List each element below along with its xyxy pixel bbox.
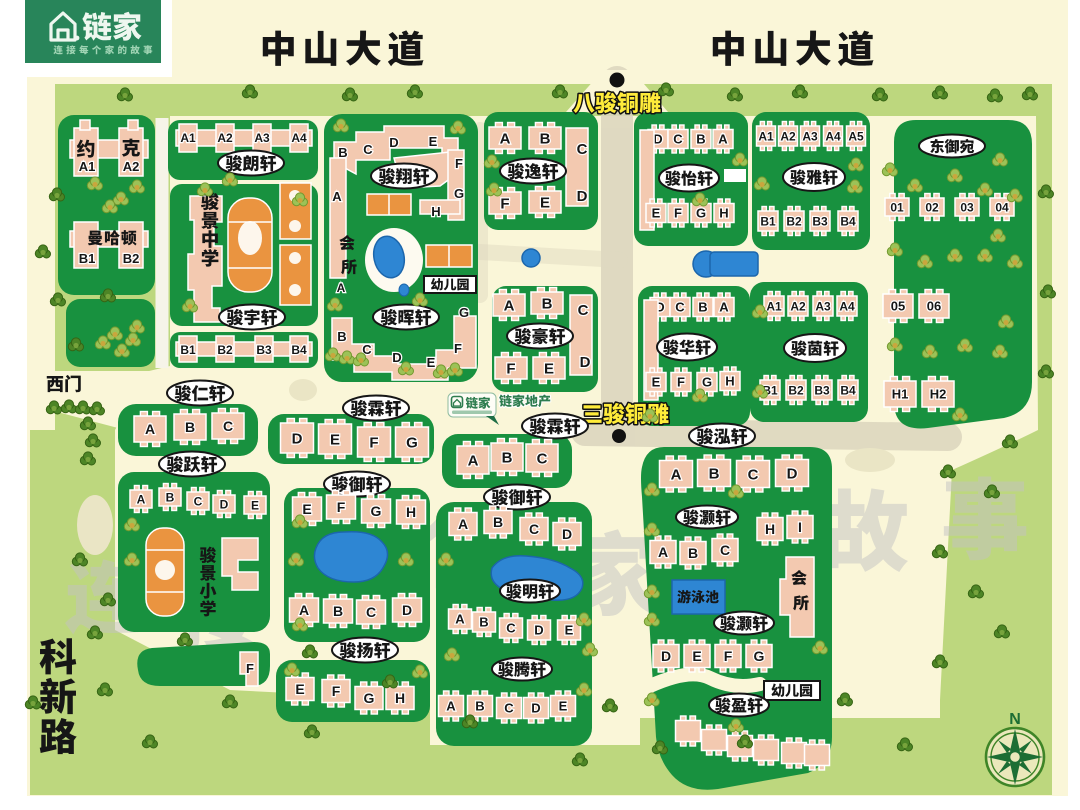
svg-text:01: 01 <box>890 200 904 214</box>
svg-text:A4: A4 <box>839 299 855 313</box>
svg-text:B: B <box>333 603 343 619</box>
svg-text:B: B <box>185 419 195 435</box>
svg-text:F: F <box>337 499 346 515</box>
svg-text:B1: B1 <box>760 214 776 228</box>
svg-text:C: C <box>578 302 589 319</box>
svg-text:A: A <box>719 300 729 315</box>
svg-text:05: 05 <box>891 299 905 314</box>
svg-text:A4: A4 <box>291 131 307 145</box>
svg-text:A5: A5 <box>848 129 864 143</box>
svg-text:C: C <box>529 521 539 537</box>
svg-text:A2: A2 <box>780 129 796 143</box>
svg-text:B: B <box>479 615 488 630</box>
svg-text:E: E <box>540 194 550 211</box>
svg-text:F: F <box>369 434 378 451</box>
svg-text:H: H <box>406 504 416 520</box>
svg-text:C: C <box>504 701 514 716</box>
svg-text:A3: A3 <box>802 129 818 143</box>
svg-text:06: 06 <box>927 299 941 314</box>
svg-text:C: C <box>363 142 373 157</box>
svg-text:F: F <box>506 360 515 377</box>
svg-text:A2: A2 <box>123 159 140 174</box>
svg-text:E: E <box>565 623 574 638</box>
svg-text:D: D <box>292 430 303 447</box>
svg-text:A: A <box>658 544 668 560</box>
svg-text:G: G <box>406 434 418 451</box>
svg-text:A3: A3 <box>254 131 270 145</box>
svg-text:D: D <box>661 648 671 664</box>
svg-text:G: G <box>702 375 712 390</box>
svg-text:G: G <box>371 503 382 519</box>
svg-text:E: E <box>544 360 554 377</box>
svg-text:E: E <box>330 431 340 448</box>
svg-text:B: B <box>698 300 707 315</box>
svg-text:A1: A1 <box>766 299 782 313</box>
svg-text:H: H <box>765 521 775 537</box>
svg-text:C: C <box>720 542 730 558</box>
svg-text:G: G <box>459 305 469 320</box>
svg-text:04: 04 <box>995 200 1009 214</box>
svg-text:A2: A2 <box>790 299 806 313</box>
svg-text:B2: B2 <box>217 343 233 357</box>
svg-text:B1: B1 <box>79 251 96 266</box>
svg-text:B4: B4 <box>840 214 856 228</box>
svg-text:02: 02 <box>925 200 939 214</box>
svg-text:C: C <box>537 450 548 467</box>
svg-text:B: B <box>502 449 513 466</box>
svg-text:A1: A1 <box>79 159 96 174</box>
svg-text:A: A <box>455 612 465 627</box>
svg-text:A1: A1 <box>758 129 774 143</box>
svg-text:B: B <box>696 132 705 147</box>
svg-text:B: B <box>688 545 698 561</box>
svg-text:B: B <box>337 329 346 344</box>
svg-text:E: E <box>295 681 304 697</box>
svg-text:E: E <box>652 206 661 221</box>
svg-text:F: F <box>677 375 685 390</box>
svg-text:E: E <box>429 134 438 149</box>
svg-text:D: D <box>531 701 540 716</box>
svg-text:A: A <box>446 699 456 714</box>
svg-text:H: H <box>395 690 405 706</box>
svg-text:A3: A3 <box>815 299 831 313</box>
svg-text:N: N <box>1009 711 1021 728</box>
svg-text:B3: B3 <box>814 383 830 397</box>
svg-text:B4: B4 <box>840 383 856 397</box>
svg-text:D: D <box>220 497 229 511</box>
svg-text:E: E <box>559 699 568 714</box>
svg-text:A2: A2 <box>217 131 233 145</box>
svg-text:E: E <box>427 355 436 370</box>
svg-text:B3: B3 <box>256 343 272 357</box>
svg-text:F: F <box>500 195 509 212</box>
svg-text:A: A <box>500 130 511 147</box>
svg-text:D: D <box>580 354 591 371</box>
svg-text:G: G <box>754 648 765 664</box>
svg-text:F: F <box>455 156 463 171</box>
svg-text:F: F <box>674 206 682 221</box>
svg-text:B2: B2 <box>788 383 804 397</box>
svg-text:H1: H1 <box>892 387 909 402</box>
svg-text:G: G <box>454 186 464 201</box>
svg-text:A4: A4 <box>825 129 841 143</box>
svg-text:B4: B4 <box>291 343 307 357</box>
svg-text:A: A <box>671 466 682 483</box>
svg-text:C: C <box>748 466 759 483</box>
svg-text:B: B <box>540 130 551 147</box>
svg-text:A: A <box>337 281 346 295</box>
svg-text:A: A <box>718 132 728 147</box>
svg-text:F: F <box>454 341 462 356</box>
svg-text:A: A <box>468 452 479 469</box>
svg-text:B: B <box>493 514 503 530</box>
svg-text:H: H <box>431 204 440 219</box>
svg-text:F: F <box>724 648 733 664</box>
svg-text:C: C <box>506 621 516 636</box>
svg-text:F: F <box>246 661 254 676</box>
svg-text:E: E <box>251 498 259 512</box>
svg-text:B2: B2 <box>786 214 802 228</box>
svg-text:E: E <box>302 501 311 517</box>
svg-text:A: A <box>504 297 515 314</box>
svg-text:D: D <box>562 526 572 542</box>
svg-text:A: A <box>332 189 342 204</box>
svg-text:H2: H2 <box>930 387 947 402</box>
svg-text:A: A <box>137 492 146 506</box>
svg-text:D: D <box>787 465 798 482</box>
svg-text:D: D <box>392 350 401 365</box>
svg-text:B: B <box>166 490 175 504</box>
svg-text:D: D <box>389 135 398 150</box>
svg-text:C: C <box>675 300 685 315</box>
svg-text:G: G <box>696 206 706 221</box>
svg-text:C: C <box>577 141 588 158</box>
svg-text:H: H <box>725 374 734 389</box>
svg-text:D: D <box>402 602 412 618</box>
svg-text:E: E <box>692 648 701 664</box>
svg-text:03: 03 <box>960 200 974 214</box>
svg-text:C: C <box>366 604 376 620</box>
svg-text:A: A <box>145 421 155 437</box>
svg-text:B: B <box>709 465 720 482</box>
svg-text:A1: A1 <box>180 131 196 145</box>
svg-text:F: F <box>332 683 341 699</box>
svg-text:G: G <box>364 690 375 706</box>
svg-text:E: E <box>652 375 661 390</box>
svg-text:I: I <box>798 519 802 535</box>
svg-text:B2: B2 <box>123 251 140 266</box>
svg-text:B1: B1 <box>180 343 196 357</box>
svg-text:A: A <box>299 602 309 618</box>
svg-text:D: D <box>534 623 543 638</box>
svg-text:B: B <box>542 295 553 312</box>
svg-text:A: A <box>458 516 468 532</box>
svg-text:D: D <box>577 188 588 205</box>
svg-text:B: B <box>475 699 484 714</box>
svg-text:C: C <box>673 132 683 147</box>
svg-text:C: C <box>223 418 233 434</box>
svg-text:B3: B3 <box>812 214 828 228</box>
svg-text:C: C <box>194 494 203 508</box>
svg-text:H: H <box>719 206 728 221</box>
